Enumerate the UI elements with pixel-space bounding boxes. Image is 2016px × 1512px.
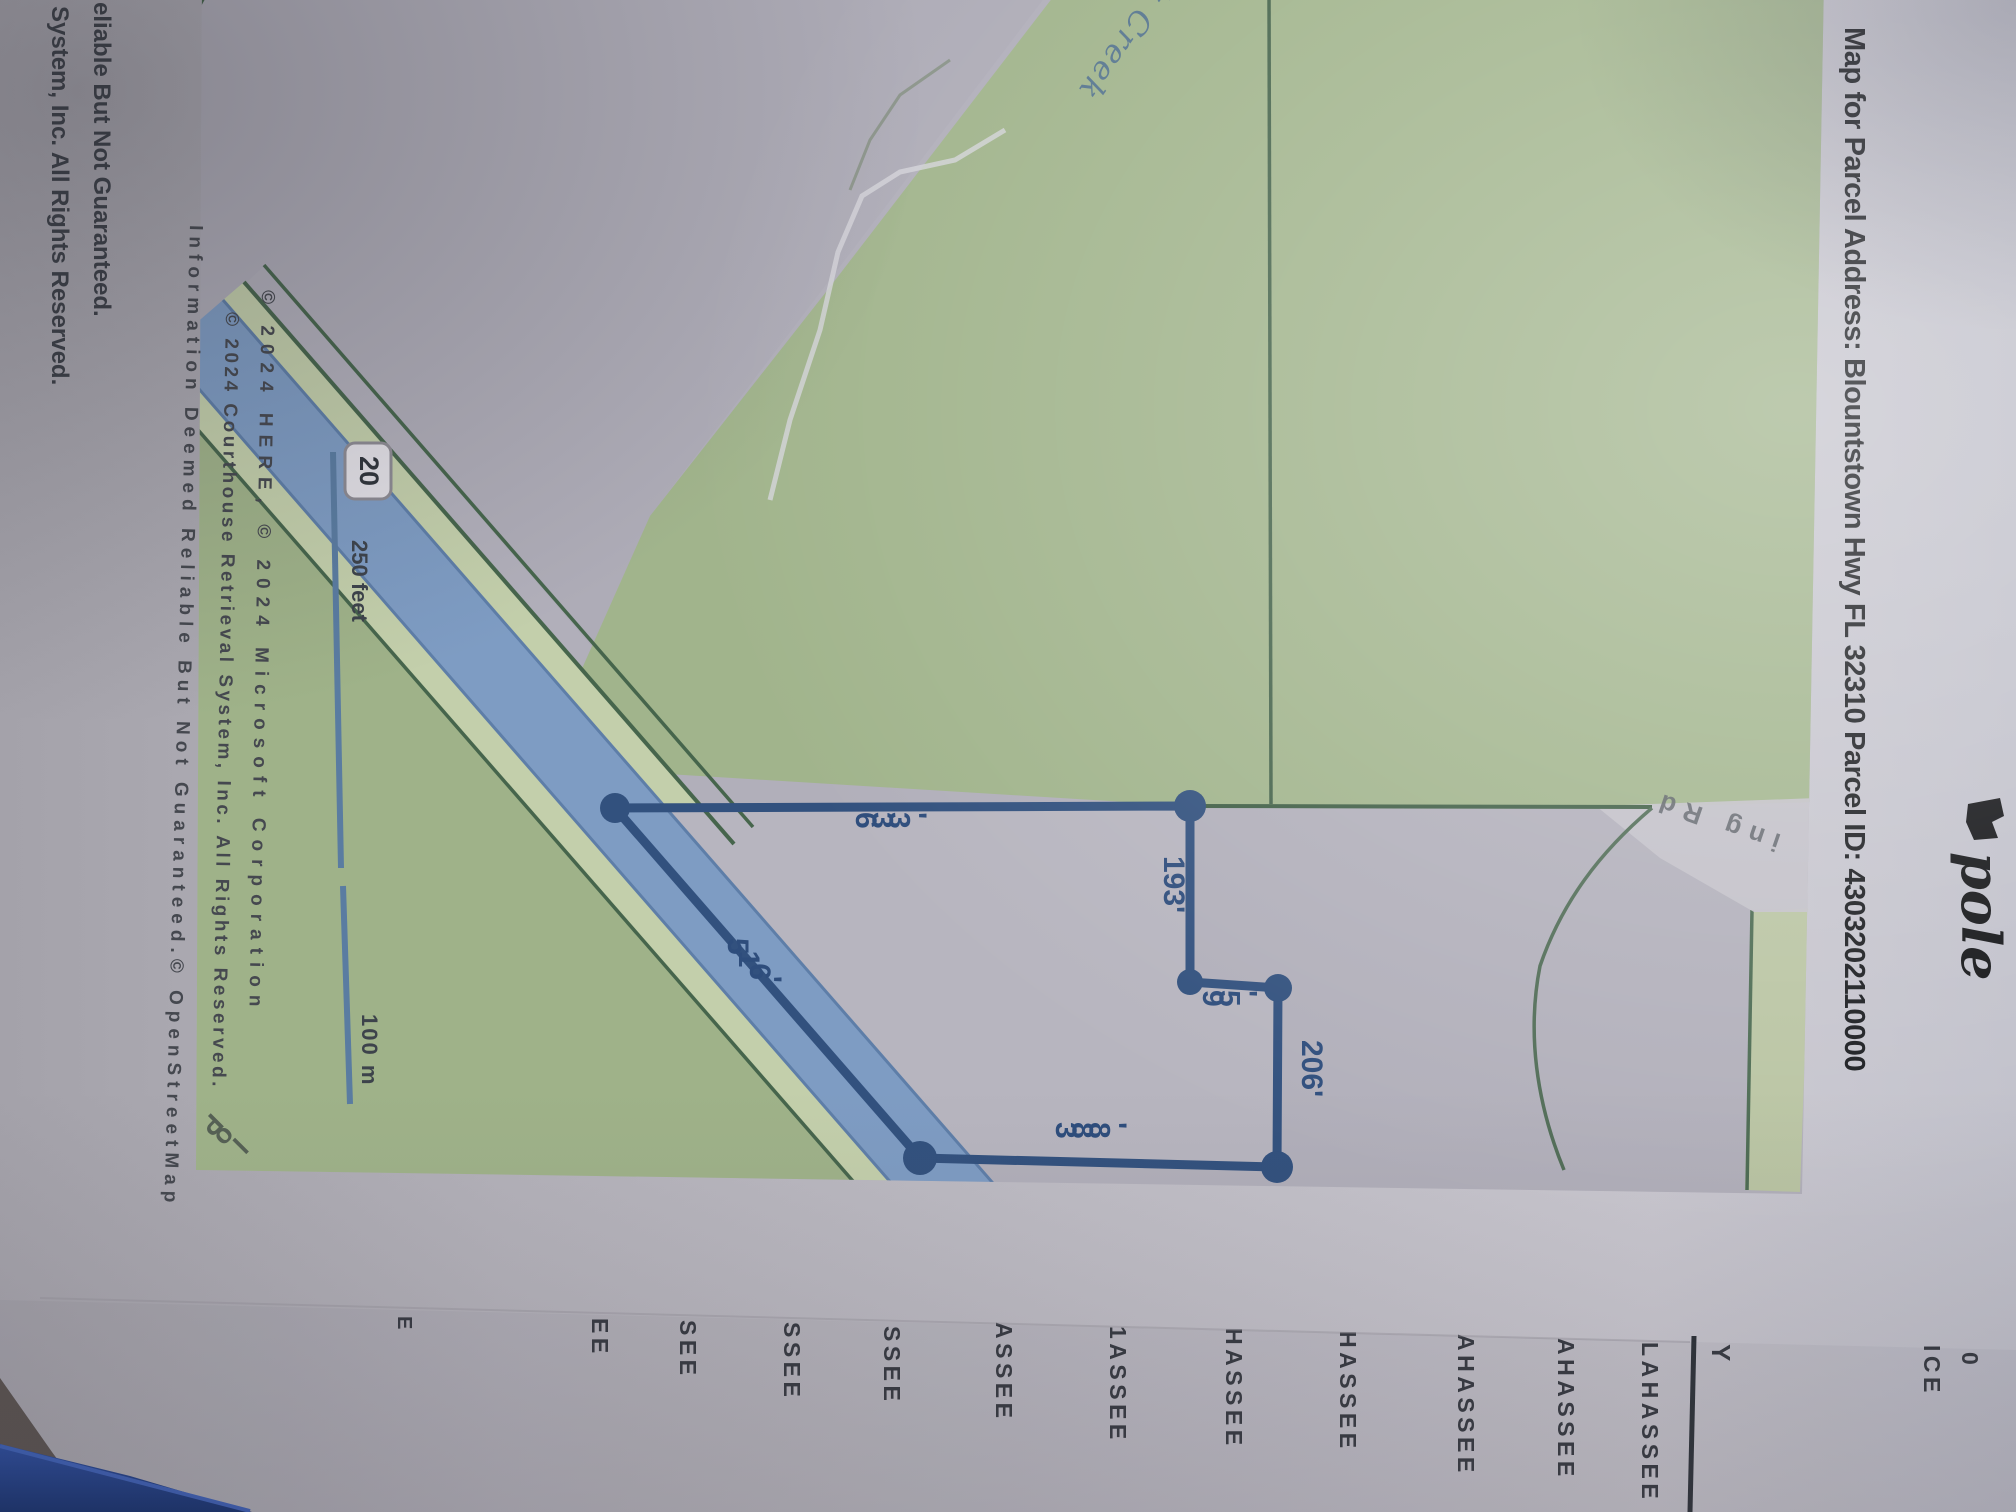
- shadow-bottom: [0, 0, 2016, 1512]
- scene: 633' 193' 95' 206' 388' 516' lk Creek in…: [0, 0, 2016, 1512]
- photo-of-parcel-map-printout: 633' 193' 95' 206' 388' 516' lk Creek in…: [0, 0, 2016, 1512]
